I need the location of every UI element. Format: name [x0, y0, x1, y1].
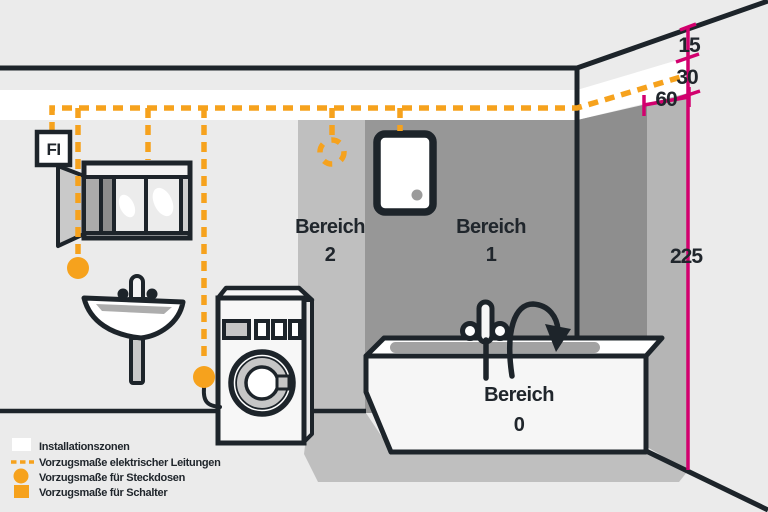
bathtub-faucet — [479, 302, 492, 342]
zone1-number: 1 — [486, 244, 497, 266]
mirror-cabinet — [377, 134, 433, 212]
washbasin-pedestal — [131, 338, 143, 383]
measure-label-30: 30 — [676, 66, 698, 89]
legend-swatch-switch-square — [14, 485, 29, 498]
zone0-number: 0 — [514, 414, 525, 436]
socket-dot-machine — [193, 366, 215, 388]
legend-swatch-socket-dot — [14, 469, 29, 484]
mirror-cabinet-knob — [412, 190, 423, 201]
side-wall-zone2-strip — [647, 93, 688, 471]
legend-label-installationszonen: Installationszonen — [39, 441, 130, 453]
legend-swatch-installation-zone — [12, 438, 31, 451]
window-strip-1 — [86, 177, 101, 233]
legend-label-schalter: Vorzugsmaße für Schalter — [39, 487, 168, 499]
measure-label-15: 15 — [678, 34, 701, 57]
mirror-cabinet-frame — [377, 134, 433, 212]
fi-switch-label: FI — [46, 140, 60, 159]
socket-dot-window — [67, 257, 89, 279]
measure-label-60: 60 — [655, 88, 677, 111]
bathtub-water — [390, 342, 600, 353]
installation-zones-diagram: FI 15 30 60 225 Bereich 2 Bereich 1 Bere… — [0, 0, 768, 512]
zone2-label: Bereich — [295, 216, 365, 238]
washing-machine — [218, 288, 312, 443]
zone2-number: 2 — [325, 244, 336, 266]
zone0-label: Bereich — [484, 384, 554, 406]
machine-button — [290, 321, 300, 338]
legend-label-steckdosen: Vorzugsmaße für Steckdosen — [39, 472, 186, 484]
machine-button — [273, 321, 285, 338]
faucet-handle — [463, 324, 478, 339]
measure-label-225: 225 — [670, 245, 703, 268]
installation-zone-band-front — [0, 90, 577, 120]
machine-door-inner — [246, 367, 278, 399]
machine-door-handle — [277, 376, 289, 389]
bathroom-zones-illustration: FI 15 30 60 225 Bereich 2 Bereich 1 Bere… — [0, 0, 768, 512]
window — [84, 163, 190, 238]
machine-display — [224, 321, 249, 338]
zone1-label: Bereich — [456, 216, 526, 238]
faucet-handle — [493, 324, 508, 339]
machine-button — [256, 321, 268, 338]
legend-label-leitungen: Vorzugsmaße elektrischer Leitungen — [39, 457, 221, 469]
